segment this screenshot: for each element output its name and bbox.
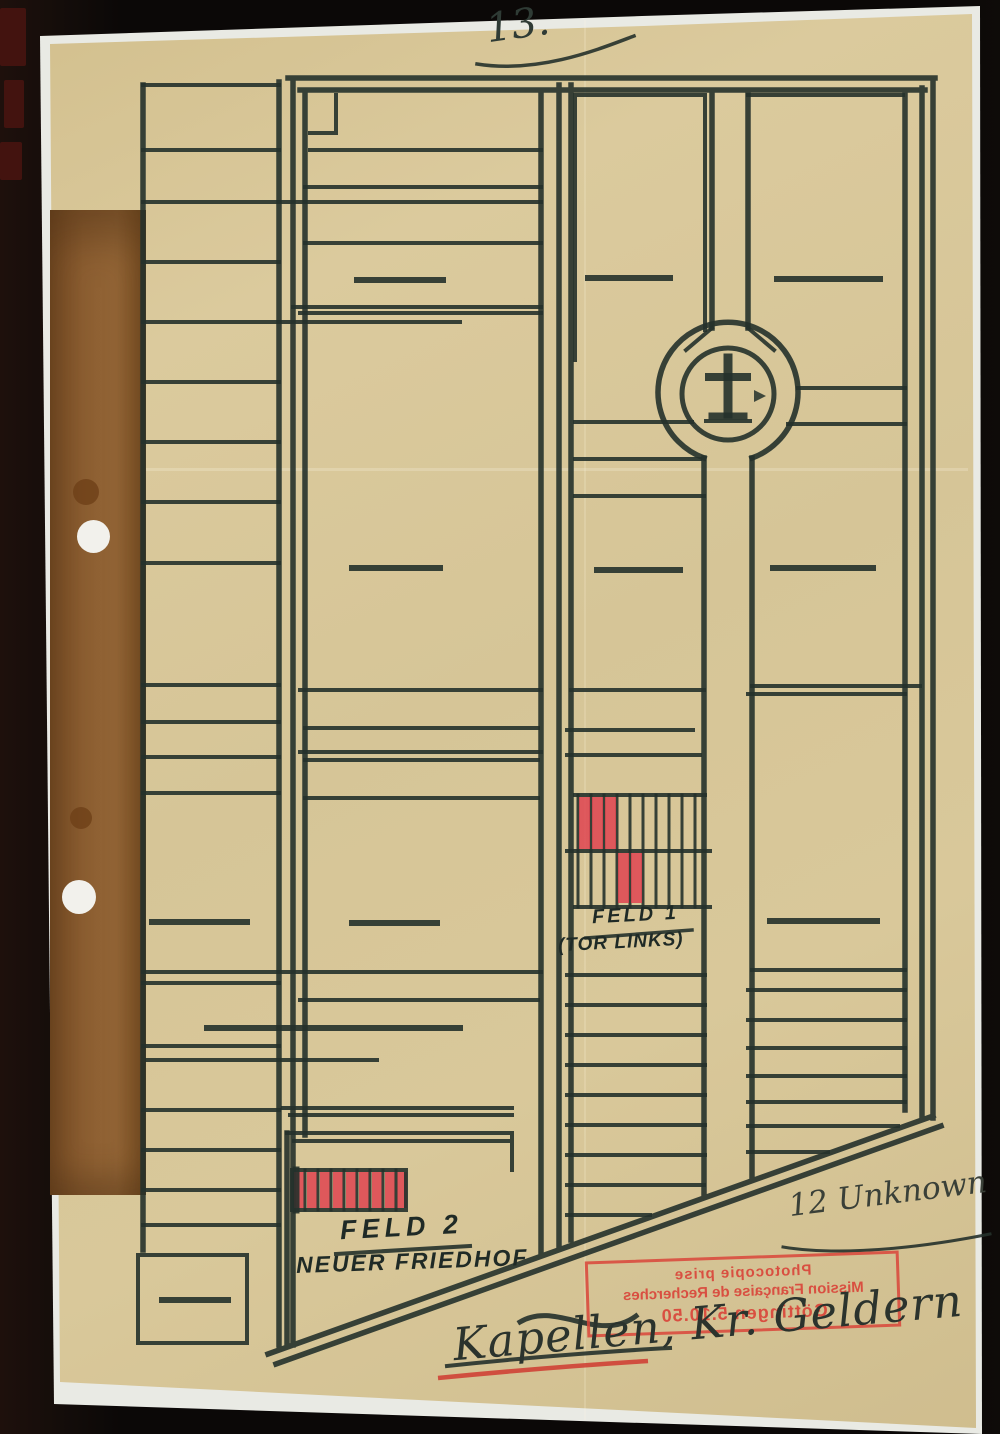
field1-grid bbox=[567, 795, 710, 907]
field2-red-graves bbox=[294, 1172, 407, 1208]
page-number-annotation: 13. bbox=[483, 0, 552, 52]
cemetery-plan-drawing bbox=[0, 0, 1000, 1434]
block-dashes bbox=[152, 278, 880, 1300]
field2-label: FELD 2 bbox=[339, 1209, 463, 1246]
chapel-circle bbox=[658, 322, 798, 458]
circle-tick bbox=[754, 390, 766, 402]
field2-grid bbox=[292, 1170, 407, 1210]
cross-icon bbox=[706, 358, 750, 421]
scanned-document: Photocopie prise Mission Française de Re… bbox=[0, 0, 1000, 1434]
field1-label: FELD 1 bbox=[591, 902, 679, 930]
grave-rows bbox=[138, 85, 920, 1343]
